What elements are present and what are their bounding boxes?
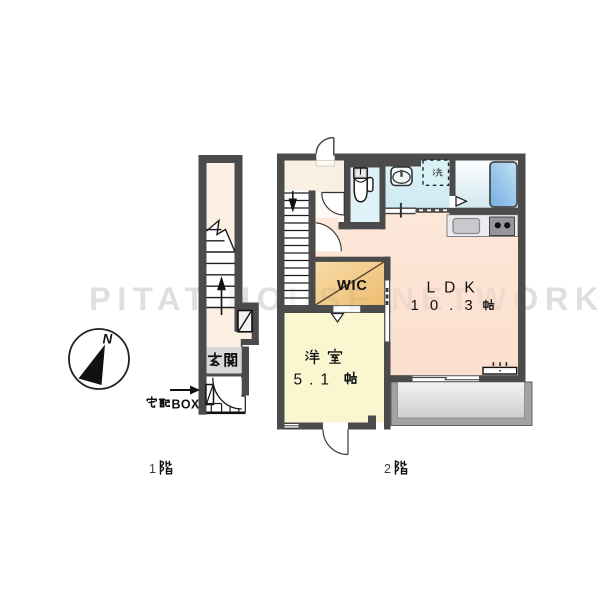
svg-text:1: 1 — [149, 462, 156, 476]
svg-text:2: 2 — [384, 462, 391, 476]
svg-text:BOX: BOX — [172, 398, 200, 412]
svg-text:PITAT HOUSE NETWORK: PITAT HOUSE NETWORK — [89, 281, 600, 317]
svg-text:N: N — [103, 332, 113, 347]
svg-text:5.1: 5.1 — [294, 372, 337, 389]
